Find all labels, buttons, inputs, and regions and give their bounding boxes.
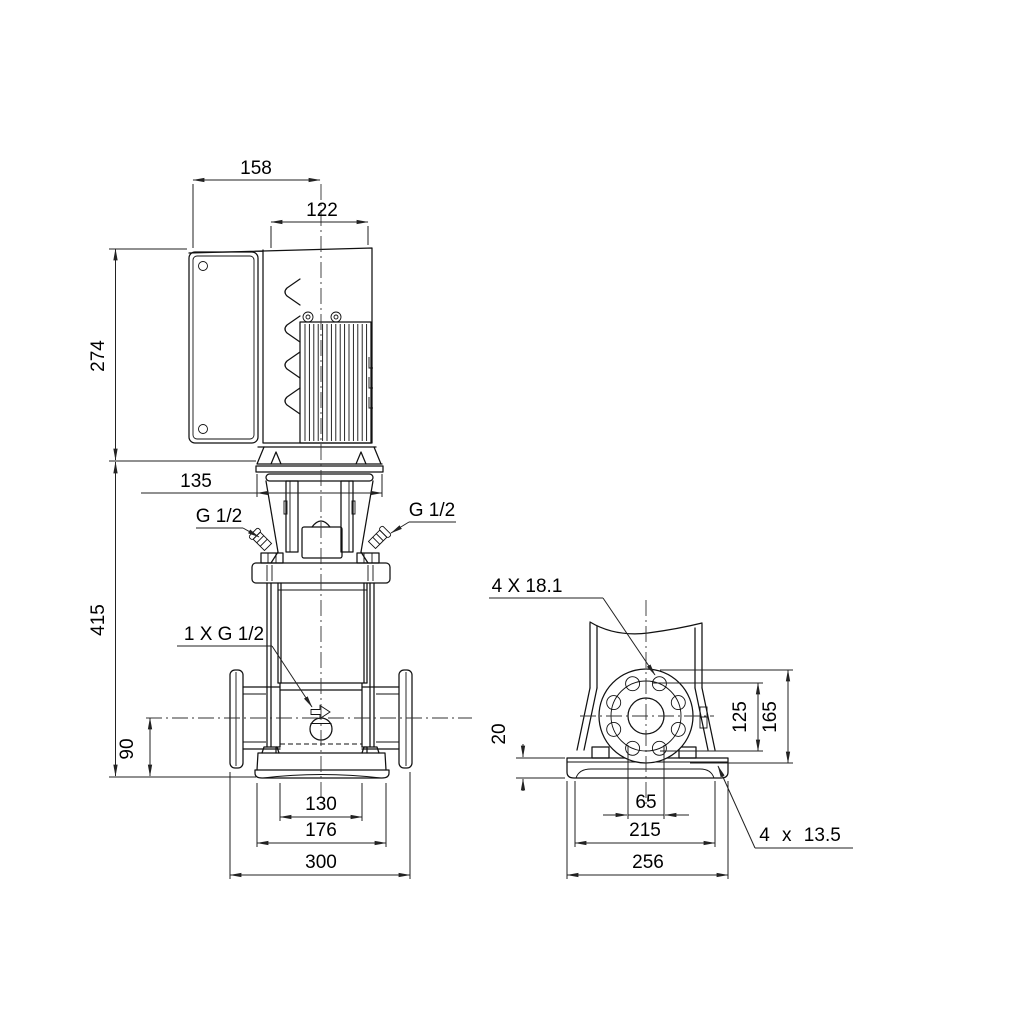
base-holes-label: 4 x 13.5 <box>759 825 841 846</box>
heatsink <box>300 312 371 443</box>
drawing-svg: 158 122 274 415 90 135 130 176 3 <box>0 0 1024 1024</box>
dim-head-width-label: 135 <box>180 471 212 492</box>
dim-plate-height-label: 20 <box>489 723 510 744</box>
dim-total-width-label: 158 <box>240 158 272 179</box>
dim-motor-width-label: 122 <box>306 200 338 221</box>
dim-plate-width-label: 256 <box>632 852 664 873</box>
front-view-drawing: 158 122 274 415 90 135 130 176 3 <box>88 158 472 879</box>
dim-base-width-label: 176 <box>305 820 337 841</box>
gauge-port-left-label: G 1/2 <box>196 506 242 527</box>
dim-flange-span-label: 300 <box>305 852 337 873</box>
dim-chamber-width-label: 130 <box>305 794 337 815</box>
motor-outline <box>189 248 376 447</box>
drain-port-label: 1 X G 1/2 <box>184 624 264 645</box>
motor-clips <box>285 279 300 414</box>
dim-bolt-circle-label: 125 <box>730 701 751 733</box>
pump-dimensional-drawing: 158 122 274 415 90 135 130 176 3 <box>0 0 1024 1024</box>
pump-base <box>255 747 389 778</box>
dim-motor-height-label: 274 <box>88 340 109 372</box>
gauge-plug-left <box>249 528 273 552</box>
dim-hole-spacing-label: 215 <box>629 820 661 841</box>
dim-flange-od-label: 165 <box>760 701 781 733</box>
flange-holes-label: 4 X 18.1 <box>492 576 563 597</box>
motor-stool <box>256 447 383 563</box>
drain-arrow-icon <box>311 706 330 719</box>
pump-sleeve <box>262 583 379 753</box>
dim-bore-label: 65 <box>635 792 656 813</box>
dim-port-height-label: 90 <box>117 738 138 759</box>
terminal-box <box>189 252 258 443</box>
dim-pump-height-label: 415 <box>88 604 109 636</box>
gauge-plug-right <box>367 526 391 550</box>
side-view-drawing: 4 X 18.1 125 165 20 65 215 256 4 x 13.5 <box>489 576 853 879</box>
gauge-port-right-label: G 1/2 <box>409 500 455 521</box>
